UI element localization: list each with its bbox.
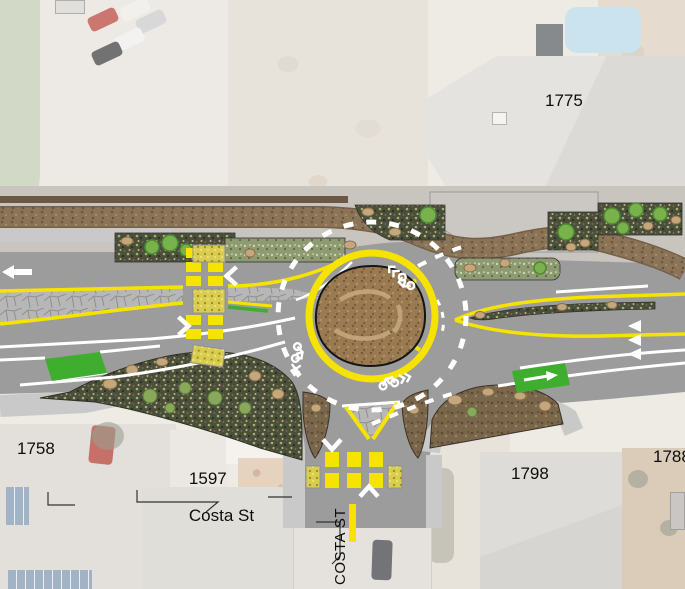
roundabout-plan-map: 1775 1758 1597 Costa St 1798 1788 COSTA … <box>0 0 685 589</box>
label-costa-st-vertical: COSTA ST <box>332 508 349 585</box>
label-1597-street: Costa St <box>189 506 254 525</box>
label-1597-number: 1597 <box>189 469 227 488</box>
label-parcel-1775: 1775 <box>545 92 583 111</box>
label-parcel-1758: 1758 <box>17 440 55 459</box>
label-parcel-1798: 1798 <box>511 465 549 484</box>
rock <box>311 404 321 412</box>
yield-triangles <box>628 320 641 360</box>
centerline-south <box>349 504 356 542</box>
central-island <box>316 266 425 366</box>
retaining-wall <box>0 196 348 203</box>
label-parcel-1788: 1788 <box>653 448 685 467</box>
plan-overlay <box>0 0 685 589</box>
label-parcel-1597: 1597 Costa St <box>170 451 254 544</box>
